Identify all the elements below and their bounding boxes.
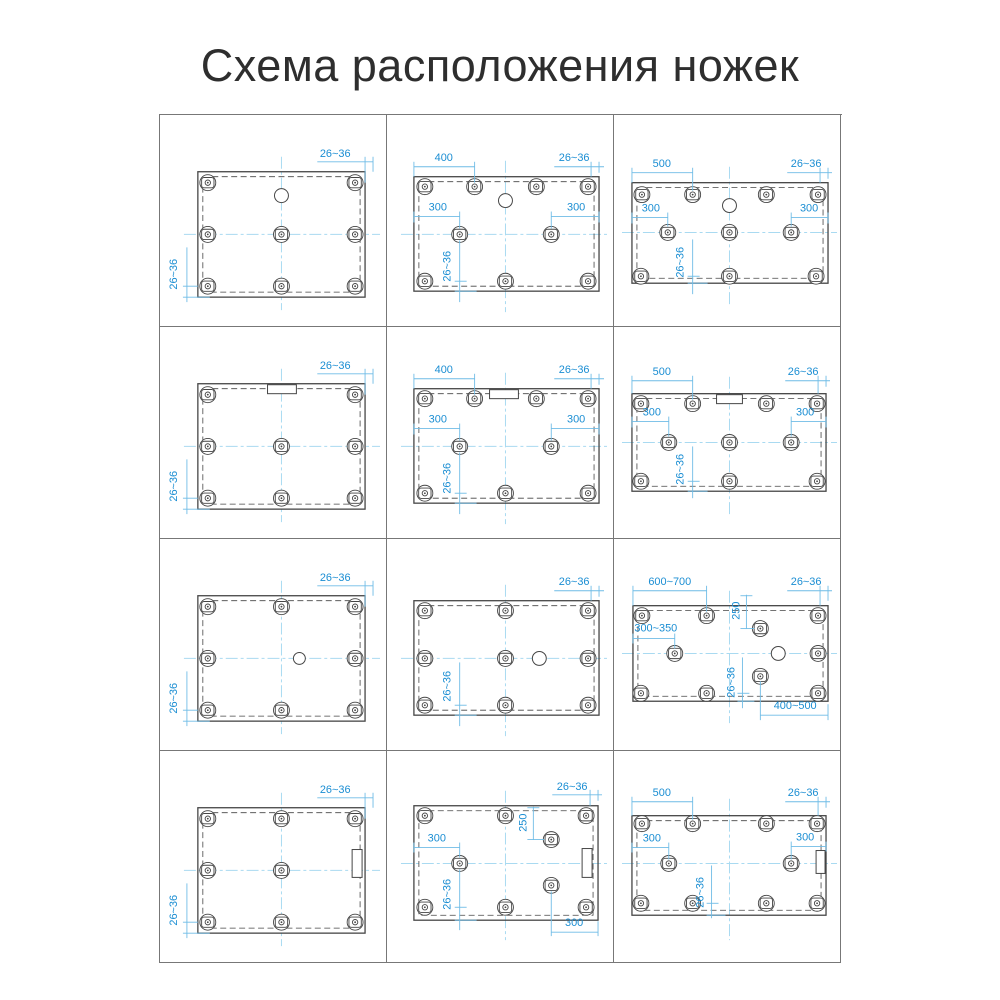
drain-slot [716,395,742,404]
leg-foot-icon [497,273,513,289]
dimension: 26~36 [552,781,602,806]
leg-foot-icon [199,599,215,615]
dimension: 26~36 [441,869,476,930]
leg-foot-icon [416,650,432,666]
dimension: 300 [551,202,599,229]
dimension: 26~36 [317,360,373,395]
dimension-label: 26~36 [167,259,179,290]
leg-foot-icon [273,811,289,827]
leg-foot-icon [659,224,675,240]
dimension: 26~36 [787,158,832,183]
drain-slot [489,390,518,399]
leg-foot-icon [416,391,432,407]
dimension-label: 300 [796,832,814,844]
leg-foot-icon [199,811,215,827]
leg-foot-icon [347,387,363,403]
dimension: 300~350 [632,623,676,649]
diagram-cell-r2c1: 26~3626~36 [160,327,387,539]
dimension-label: 300 [796,407,814,419]
leg-foot-icon [199,490,215,506]
leg-layout-drawing-r1c1: 26~3626~36 [160,115,386,326]
dimension-label: 26~36 [674,247,686,278]
leg-foot-icon [416,697,432,713]
dimension: 300 [551,414,599,441]
leg-foot-icon [808,268,824,284]
leg-foot-icon [199,226,215,242]
leg-foot-icon [347,438,363,454]
leg-foot-icon [809,473,825,489]
dimension-label: 300 [565,917,583,929]
leg-foot-icon [721,473,737,489]
dimension-label: 26~36 [787,787,818,799]
leg-foot-icon [783,434,799,450]
diagram-cell-r3c2: 26~3626~36 [387,539,614,751]
dimension-label: 250 [517,814,529,832]
drain-hole [532,651,546,665]
leg-foot-icon [347,650,363,666]
dimension: 300 [413,414,459,441]
leg-foot-icon [199,702,215,718]
leg-foot-icon [632,685,648,701]
leg-foot-icon [580,179,596,195]
drain-hole [498,194,512,208]
diagram-cell-r4c2: 26~3625030026~36300 [387,751,614,963]
dimension-label: 26~36 [694,877,706,908]
dimension: 26~36 [785,366,830,394]
leg-foot-icon [633,608,649,624]
leg-foot-icon [451,856,467,872]
dimension: 26~36 [167,247,209,302]
dimension-label: 250 [730,602,742,620]
diagram-cell-r4c1: 26~3626~36 [160,751,387,963]
leg-foot-icon [580,603,596,619]
dimension: 26~36 [554,152,604,177]
dimension: 400 [413,364,474,395]
leg-foot-icon [273,599,289,615]
dimension: 26~36 [674,446,707,498]
leg-foot-icon [199,387,215,403]
diagram-cell-r3c3: 600~70026~36250300~35026~36400~500 [614,539,841,751]
leg-layout-grid: 26~3626~3640026~3630030026~3650026~36300… [159,114,842,963]
dimension-label: 300 [642,407,660,419]
drain-hole [274,189,288,203]
diagram-cell-r2c2: 40026~3630030026~36 [387,327,614,539]
leg-foot-icon [810,187,826,203]
leg-foot-icon [783,224,799,240]
dimension-label: 26~36 [319,784,350,796]
leg-foot-icon [416,899,432,915]
dimension: 250 [730,595,754,629]
dimension-label: 26~36 [319,148,350,160]
leg-foot-icon [199,438,215,454]
leg-foot-icon [273,914,289,930]
dimension-label: 300 [427,833,445,845]
leg-foot-icon [578,899,594,915]
leg-foot-icon [721,434,737,450]
leg-foot-icon [273,226,289,242]
drain-hole [293,652,305,664]
dimension: 400 [413,152,474,183]
dimension-label: 300 [642,833,660,845]
leg-foot-icon [347,599,363,615]
dimension-label: 400 [434,152,452,164]
dimension-label: 26~36 [319,360,350,372]
leg-foot-icon [580,697,596,713]
leg-foot-icon [633,187,649,203]
diagram-cell-r1c1: 26~3626~36 [160,115,387,327]
drain-slot [816,851,825,874]
dimension: 500 [631,787,692,820]
leg-foot-icon [273,702,289,718]
dimension: 26~36 [441,452,476,514]
leg-layout-drawing-r3c2: 26~3626~36 [387,539,613,750]
dimension: 26~36 [441,240,476,302]
leg-foot-icon [273,278,289,294]
dimension: 300 [413,833,459,858]
leg-foot-icon [721,224,737,240]
dimension-label: 400 [434,364,452,376]
dimension-label: 500 [652,366,670,378]
dimension-label: 26~36 [167,683,179,714]
leg-foot-icon [528,391,544,407]
page-title: Схема расположения ножек [0,0,1000,92]
dimension-label: 26~36 [674,454,686,485]
leg-foot-icon [416,808,432,824]
dimension-label: 26~36 [556,781,587,793]
dimension: 300 [413,202,459,229]
dimension-label: 500 [652,158,670,170]
drain-hole [722,199,736,213]
leg-foot-icon [199,278,215,294]
dimension: 26~36 [167,883,209,938]
leg-foot-icon [347,226,363,242]
dimension: 26~36 [167,459,209,514]
leg-foot-icon [416,273,432,289]
leg-foot-icon [416,485,432,501]
leg-foot-icon [580,650,596,666]
diagram-cell-r4c3: 50026~3630030026~36 [614,751,841,963]
leg-foot-icon [416,603,432,619]
leg-layout-drawing-r4c3: 50026~3630030026~36 [614,751,840,962]
leg-foot-icon [758,895,774,911]
dimension-label: 26~36 [790,158,821,170]
dimension-label: 300 [428,202,446,214]
leg-foot-icon [347,490,363,506]
leg-foot-icon [632,473,648,489]
leg-foot-icon [416,179,432,195]
leg-foot-icon [451,226,467,242]
dimension-label: 26~36 [558,364,589,376]
dimension-label: 26~36 [167,471,179,502]
leg-foot-icon [758,187,774,203]
dimension-label: 26~36 [441,671,453,702]
dimension-label: 300 [567,202,585,214]
leg-foot-icon [632,895,648,911]
dimension-label: 26~36 [167,895,179,926]
dimension-label: 26~36 [319,572,350,584]
diagram-cell-r3c1: 26~3626~36 [160,539,387,751]
dimension-label: 300~350 [634,623,677,635]
dimension: 300 [631,833,668,860]
dimension-label: 26~36 [558,576,589,588]
leg-foot-icon [199,650,215,666]
dimension: 26~36 [554,364,604,389]
dimension-label: 300 [567,414,585,426]
dimension: 26~36 [554,576,604,601]
leg-foot-icon [497,808,513,824]
dimension: 26~36 [317,572,373,607]
leg-layout-drawing-r2c3: 50026~3630030026~36 [614,327,840,538]
dimension: 26~36 [785,787,830,816]
dimension-label: 300 [641,203,659,215]
leg-foot-icon [809,895,825,911]
leg-layout-drawing-r3c3: 600~70026~36250300~35026~36400~500 [614,539,840,750]
leg-foot-icon [528,179,544,195]
drain-slot [352,850,362,878]
leg-layout-drawing-r1c3: 50026~3630030026~36 [614,115,840,326]
dimension: 26~36 [317,148,373,183]
leg-layout-drawing-r3c1: 26~3626~36 [160,539,386,750]
leg-foot-icon [810,645,826,661]
leg-foot-icon [578,808,594,824]
dimension-label: 300 [799,203,817,215]
leg-foot-icon [810,608,826,624]
leg-foot-icon [273,438,289,454]
leg-foot-icon [199,862,215,878]
leg-foot-icon [497,650,513,666]
leg-foot-icon [580,391,596,407]
leg-foot-icon [758,396,774,412]
leg-foot-icon [273,862,289,878]
leg-layout-drawing-r2c1: 26~3626~36 [160,327,386,538]
diagram-cell-r1c3: 50026~3630030026~36 [614,115,841,327]
leg-foot-icon [543,832,559,848]
leg-foot-icon [451,438,467,454]
leg-foot-icon [347,702,363,718]
dimension: 250 [517,807,544,840]
dimension: 500 [631,366,692,400]
leg-foot-icon [273,490,289,506]
dimension: 500 [631,158,692,191]
leg-layout-drawing-r4c1: 26~3626~36 [160,751,386,962]
leg-foot-icon [809,816,825,832]
dimension-label: 26~36 [725,667,737,698]
dimension: 300 [631,203,667,227]
dimension: 26~36 [441,662,476,726]
leg-foot-icon [199,175,215,191]
leg-foot-icon [347,278,363,294]
dimension: 26~36 [317,784,373,819]
leg-layout-drawing-r2c2: 40026~3630030026~36 [387,327,613,538]
diagram-cell-r2c3: 50026~3630030026~36 [614,327,841,539]
dimension-label: 26~36 [790,576,821,588]
leg-foot-icon [580,273,596,289]
leg-foot-icon [660,434,676,450]
leg-foot-icon [632,268,648,284]
dimension-label: 300 [428,414,446,426]
leg-foot-icon [543,226,559,242]
leg-foot-icon [810,685,826,701]
leg-foot-icon [497,485,513,501]
leg-foot-icon [543,877,559,893]
leg-foot-icon [347,914,363,930]
dimension: 300 [791,203,828,227]
drain-slot [267,385,296,394]
leg-foot-icon [497,899,513,915]
leg-foot-icon [721,268,737,284]
drain-slot [582,849,592,878]
leg-foot-icon [758,816,774,832]
dimension-label: 500 [652,787,670,799]
dimension: 26~36 [167,671,209,726]
leg-foot-icon [497,603,513,619]
dimension-label: 26~36 [787,366,818,378]
leg-foot-icon [347,175,363,191]
dimension-label: 26~36 [441,251,453,282]
leg-foot-icon [633,816,649,832]
dimension: 26~36 [674,239,707,294]
diagram-cell-r1c2: 40026~3630030026~36 [387,115,614,327]
leg-foot-icon [497,697,513,713]
leg-foot-icon [199,914,215,930]
leg-foot-icon [752,621,768,637]
leg-foot-icon [347,811,363,827]
leg-foot-icon [698,685,714,701]
leg-layout-drawing-r4c2: 26~3625030026~36300 [387,751,613,962]
dimension-label: 26~36 [558,152,589,164]
leg-foot-icon [543,438,559,454]
dimension-label: 26~36 [441,879,453,910]
dimension-label: 600~700 [648,576,691,588]
drain-hole [771,646,785,660]
dimension-label: 26~36 [441,463,453,494]
leg-foot-icon [580,485,596,501]
leg-layout-drawing-r1c2: 40026~3630030026~36 [387,115,613,326]
dimension: 26~36 [787,576,832,606]
dimension-label: 400~500 [773,700,816,712]
